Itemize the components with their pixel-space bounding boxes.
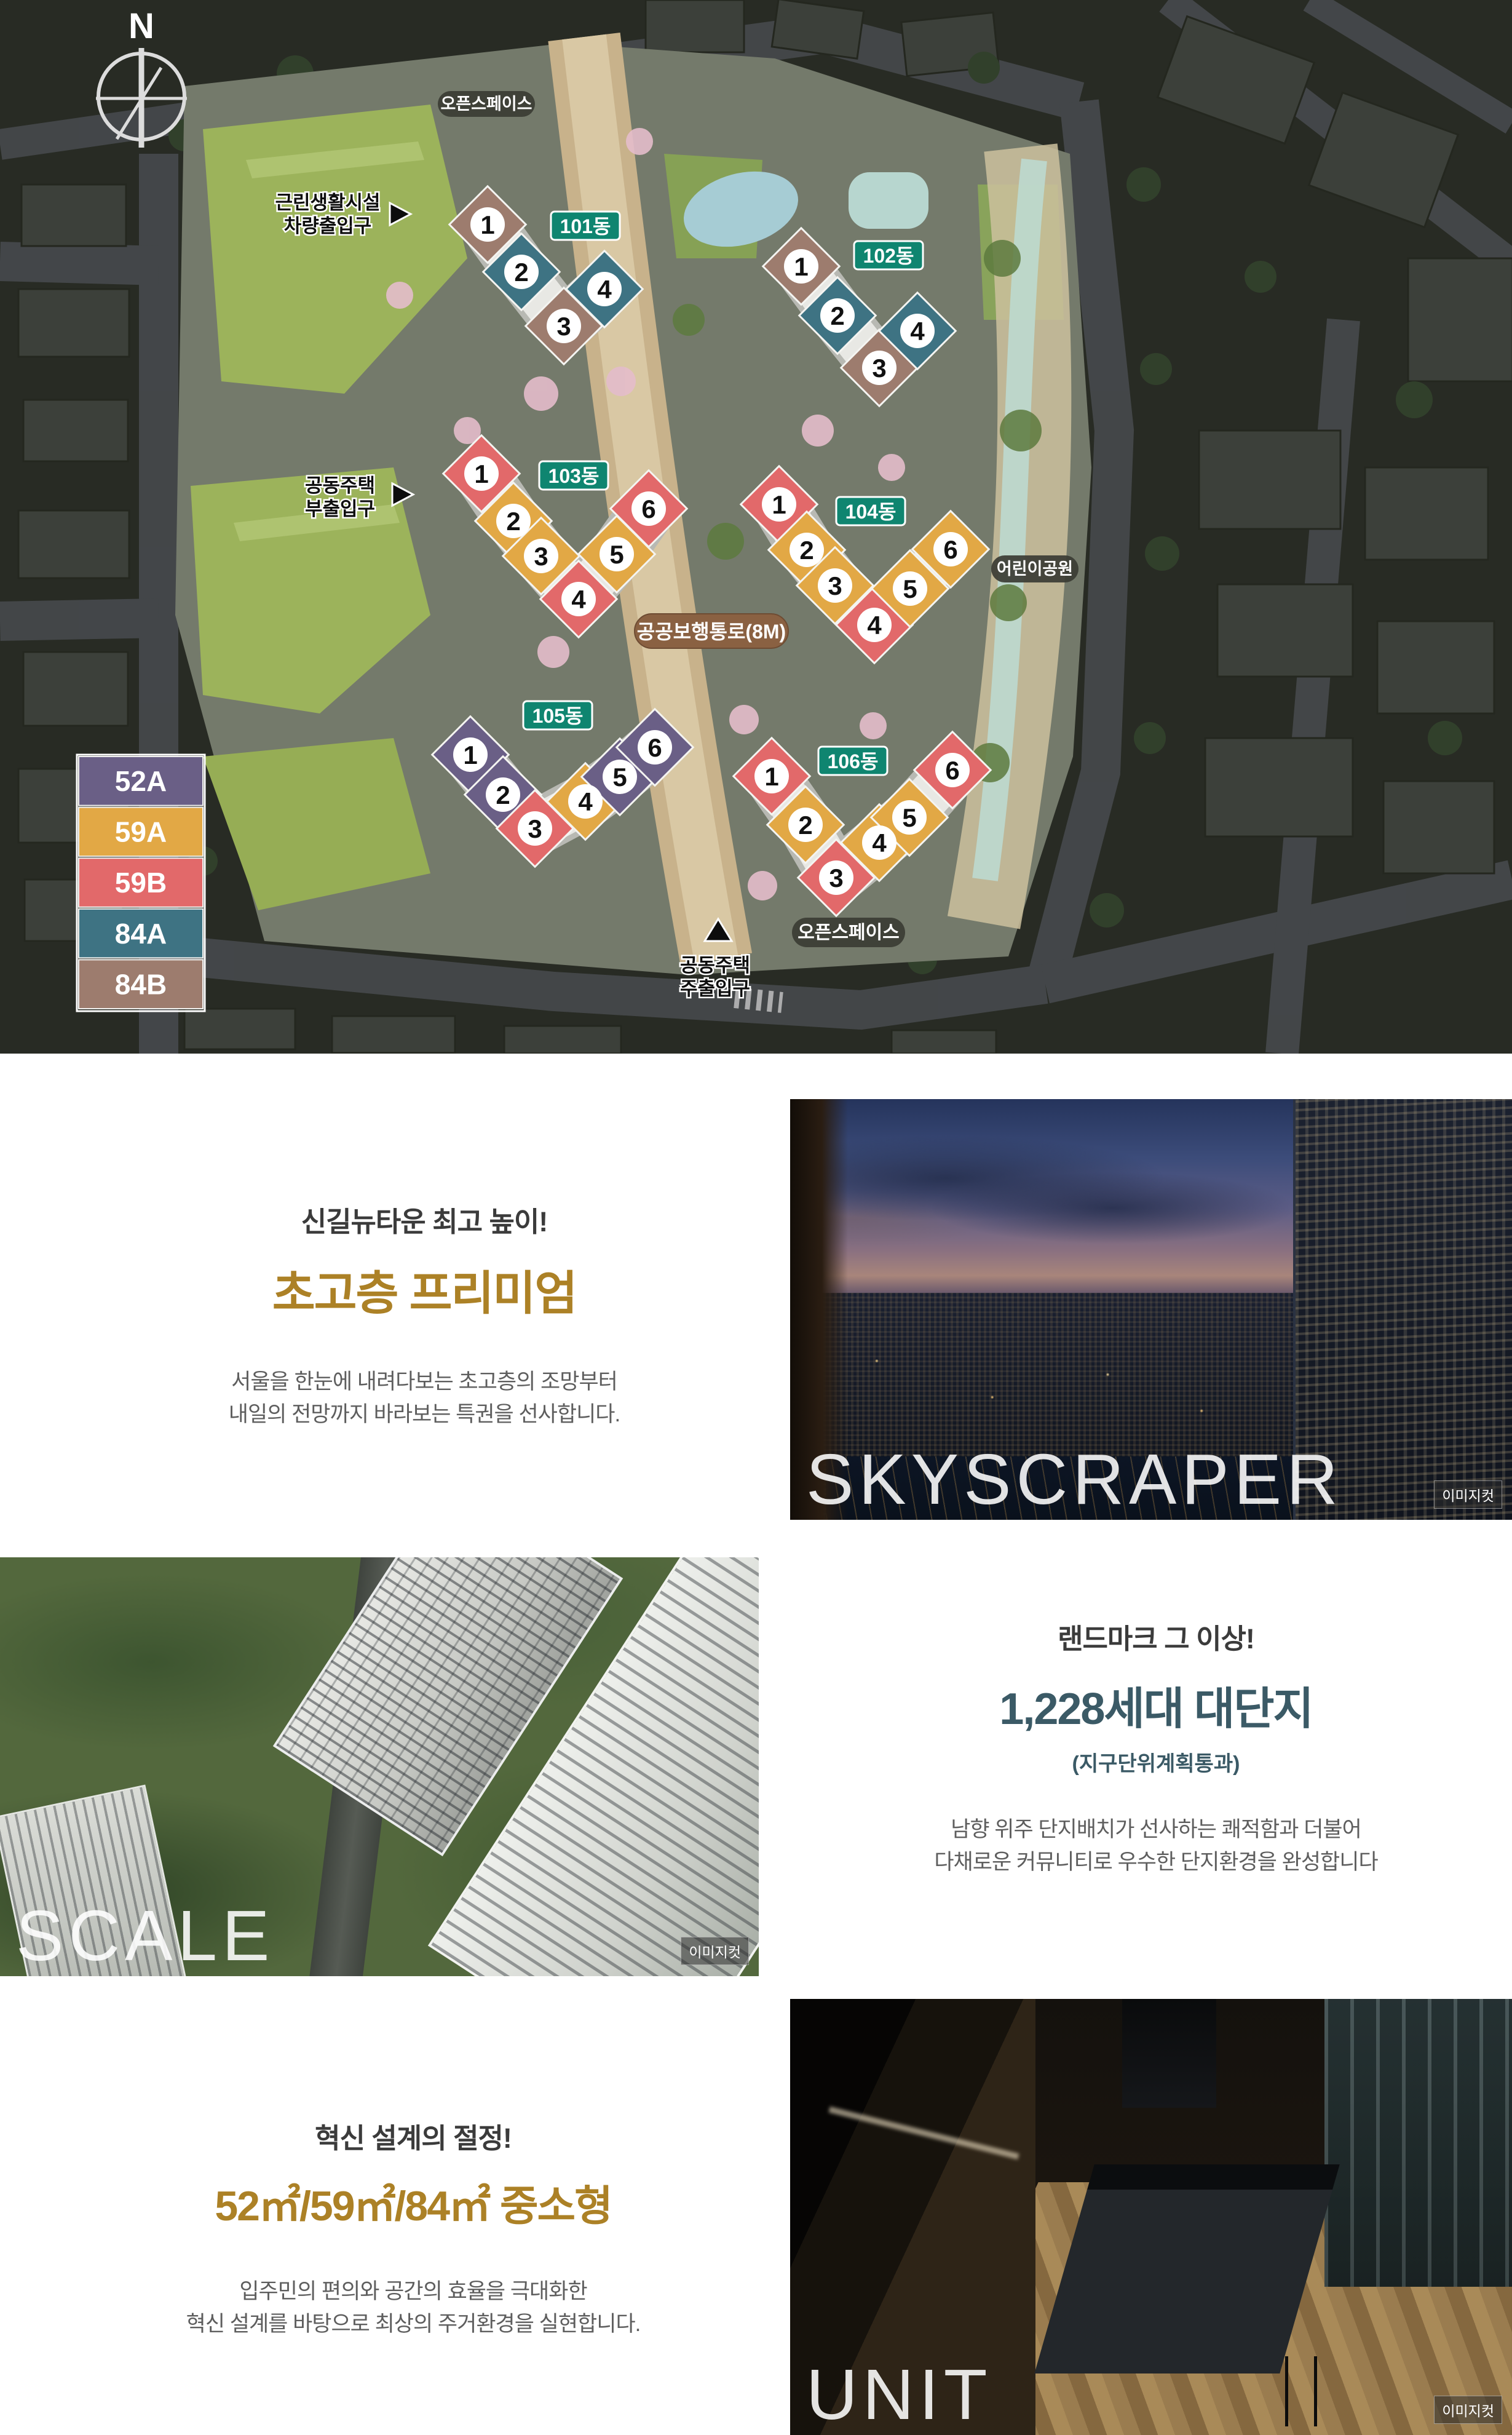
svg-text:주출입구: 주출입구 — [680, 978, 750, 999]
promo-page: 1234101동1234102동123456103동123456104동1234… — [0, 0, 1512, 2435]
unit-number: 1 — [764, 762, 778, 791]
skyscraper-word: SKYSCRAPER — [806, 1444, 1343, 1515]
unit-headline: 52㎡/59㎡/84㎡ 중소형 — [61, 2172, 765, 2233]
unit-number: 2 — [496, 781, 510, 809]
public-walkway-label: 공공보행통로(8M) — [637, 621, 786, 643]
unit-number: 3 — [829, 864, 843, 892]
skyscraper-eyebrow: 신길뉴타운 최고 높이! — [61, 1199, 787, 1239]
unit-number: 4 — [578, 787, 593, 816]
unit-number: 3 — [828, 571, 842, 600]
scale-body-line1: 남향 위주 단지배치가 선사하는 쾌적함과 더불어 — [892, 1814, 1420, 1846]
unit-number: 1 — [794, 252, 808, 281]
skyscraper-photo-clouds — [790, 1124, 1310, 1259]
unit-body-line1: 입주민의 편의와 공간의 효율을 극대화한 — [61, 2276, 765, 2308]
legend-label-59B: 59B — [115, 867, 167, 899]
building-label: 101동 — [560, 215, 611, 237]
unit-photo-hood — [1122, 1999, 1216, 2108]
unit-image-tag: 이미지컷 — [1434, 2396, 1502, 2424]
unit-number: 6 — [945, 756, 959, 785]
skyscraper-image-tag: 이미지컷 — [1434, 1480, 1502, 1509]
unit-number: 2 — [830, 301, 844, 330]
unit-photo-chair — [1314, 2356, 1317, 2426]
unit-number: 3 — [872, 354, 886, 383]
unit-photo-glass-wall — [1324, 1999, 1512, 2287]
svg-text:공동주택: 공동주택 — [305, 475, 375, 496]
unit-number: 1 — [772, 490, 786, 519]
legend-label-52A: 52A — [115, 765, 167, 797]
building-label: 103동 — [548, 465, 600, 487]
unit-number: 5 — [903, 574, 917, 603]
unit-photo-chair — [1285, 2356, 1288, 2426]
unit-number: 3 — [534, 542, 548, 571]
legend-label-59A: 59A — [115, 816, 167, 848]
feature-unit-text: 혁신 설계의 절정! 52㎡/59㎡/84㎡ 중소형 입주민의 편의와 공간의 … — [61, 2116, 765, 2340]
building-label: 105동 — [532, 705, 584, 727]
feature-scale-text: 랜드마크 그 이상! 1,228세대 대단지 (지구단위계획통과) 남향 위주 … — [892, 1616, 1420, 1878]
open-space-top-label: 오픈스페이스 — [440, 95, 532, 113]
open-space-bottom-label: 오픈스페이스 — [798, 923, 900, 943]
building-label: 102동 — [863, 245, 914, 267]
unit-number: 2 — [799, 536, 813, 565]
public-walkway-pill: 공공보행통로(8M) — [635, 614, 788, 648]
scale-eyebrow: 랜드마크 그 이상! — [892, 1616, 1420, 1656]
children-park-label: 어린이공원 — [997, 560, 1073, 578]
unit-number: 4 — [571, 585, 586, 614]
scale-body-line2: 다채로운 커뮤니티로 우수한 단지환경을 완성합니다 — [892, 1846, 1420, 1879]
skyscraper-photo: SKYSCRAPER 이미지컷 — [790, 1099, 1512, 1520]
skyscraper-body-line2: 내일의 전망까지 바라보는 특권을 선사합니다. — [61, 1399, 787, 1431]
unit-number: 1 — [474, 459, 488, 488]
scale-image-tag: 이미지컷 — [681, 1937, 749, 1965]
site-plan-map: 1234101동1234102동123456103동123456104동1234… — [0, 0, 1512, 1054]
open-space-top-pill: 오픈스페이스 — [438, 91, 535, 117]
unit-photo: UNIT 이미지컷 — [790, 1999, 1512, 2435]
unit-word: UNIT — [806, 2359, 992, 2430]
skyscraper-body: 서울을 한눈에 내려다보는 초고층의 조망부터 내일의 전망까지 바라보는 특권… — [61, 1366, 787, 1431]
building-label: 104동 — [845, 501, 897, 523]
svg-text:부출입구: 부출입구 — [305, 498, 375, 520]
unit-number: 3 — [528, 814, 542, 843]
scale-body: 남향 위주 단지배치가 선사하는 쾌적함과 더불어 다채로운 커뮤니티로 우수한… — [892, 1814, 1420, 1878]
unit-number: 4 — [597, 275, 612, 304]
scale-photo: SCALE 이미지컷 — [0, 1557, 759, 1976]
compass-north-label: N — [129, 6, 154, 46]
unit-number: 2 — [506, 507, 520, 536]
unit-number: 6 — [641, 495, 655, 523]
unit-number: 6 — [943, 535, 957, 564]
unit-number: 2 — [798, 811, 812, 840]
site-plan-svg: 1234101동1234102동123456103동123456104동1234… — [0, 0, 1512, 1054]
unit-body: 입주민의 편의와 공간의 효율을 극대화한 혁신 설계를 바탕으로 최상의 주거… — [61, 2276, 765, 2340]
unit-number: 3 — [556, 312, 571, 341]
scale-subhead: (지구단위계획통과) — [892, 1747, 1420, 1777]
playground — [849, 172, 928, 229]
unit-number: 1 — [480, 210, 494, 239]
legend-label-84A: 84A — [115, 918, 167, 950]
unit-number: 4 — [910, 317, 925, 346]
unit-number: 6 — [647, 733, 662, 762]
svg-text:근린생활시설: 근린생활시설 — [275, 192, 380, 213]
unit-number: 1 — [463, 741, 477, 769]
children-park-pill: 어린이공원 — [991, 555, 1079, 582]
scale-word: SCALE — [16, 1900, 274, 1971]
unit-eyebrow: 혁신 설계의 절정! — [61, 2116, 765, 2156]
unit-number: 5 — [612, 763, 627, 792]
legend-label-84B: 84B — [115, 968, 167, 1000]
unit-number: 5 — [609, 540, 623, 569]
open-space-bottom-pill: 오픈스페이스 — [792, 918, 905, 947]
svg-text:차량출입구: 차량출입구 — [284, 215, 372, 237]
building-label: 106동 — [828, 750, 879, 773]
unit-number: 5 — [902, 803, 916, 832]
unit-number: 4 — [872, 828, 887, 857]
unit-number: 4 — [867, 611, 882, 640]
unit-body-line2: 혁신 설계를 바탕으로 최상의 주거환경을 실현합니다. — [61, 2308, 765, 2341]
unit-number: 2 — [514, 258, 528, 287]
skyscraper-body-line1: 서울을 한눈에 내려다보는 초고층의 조망부터 — [61, 1366, 787, 1399]
feature-skyscraper-text: 신길뉴타운 최고 높이! 초고층 프리미엄 서울을 한눈에 내려다보는 초고층의… — [61, 1199, 787, 1431]
skyscraper-headline: 초고층 프리미엄 — [61, 1255, 787, 1323]
unit-type-legend: 52A59A59B84A84B — [77, 755, 205, 1011]
svg-text:공동주택: 공동주택 — [680, 955, 750, 976]
scale-headline: 1,228세대 대단지 — [892, 1672, 1420, 1737]
